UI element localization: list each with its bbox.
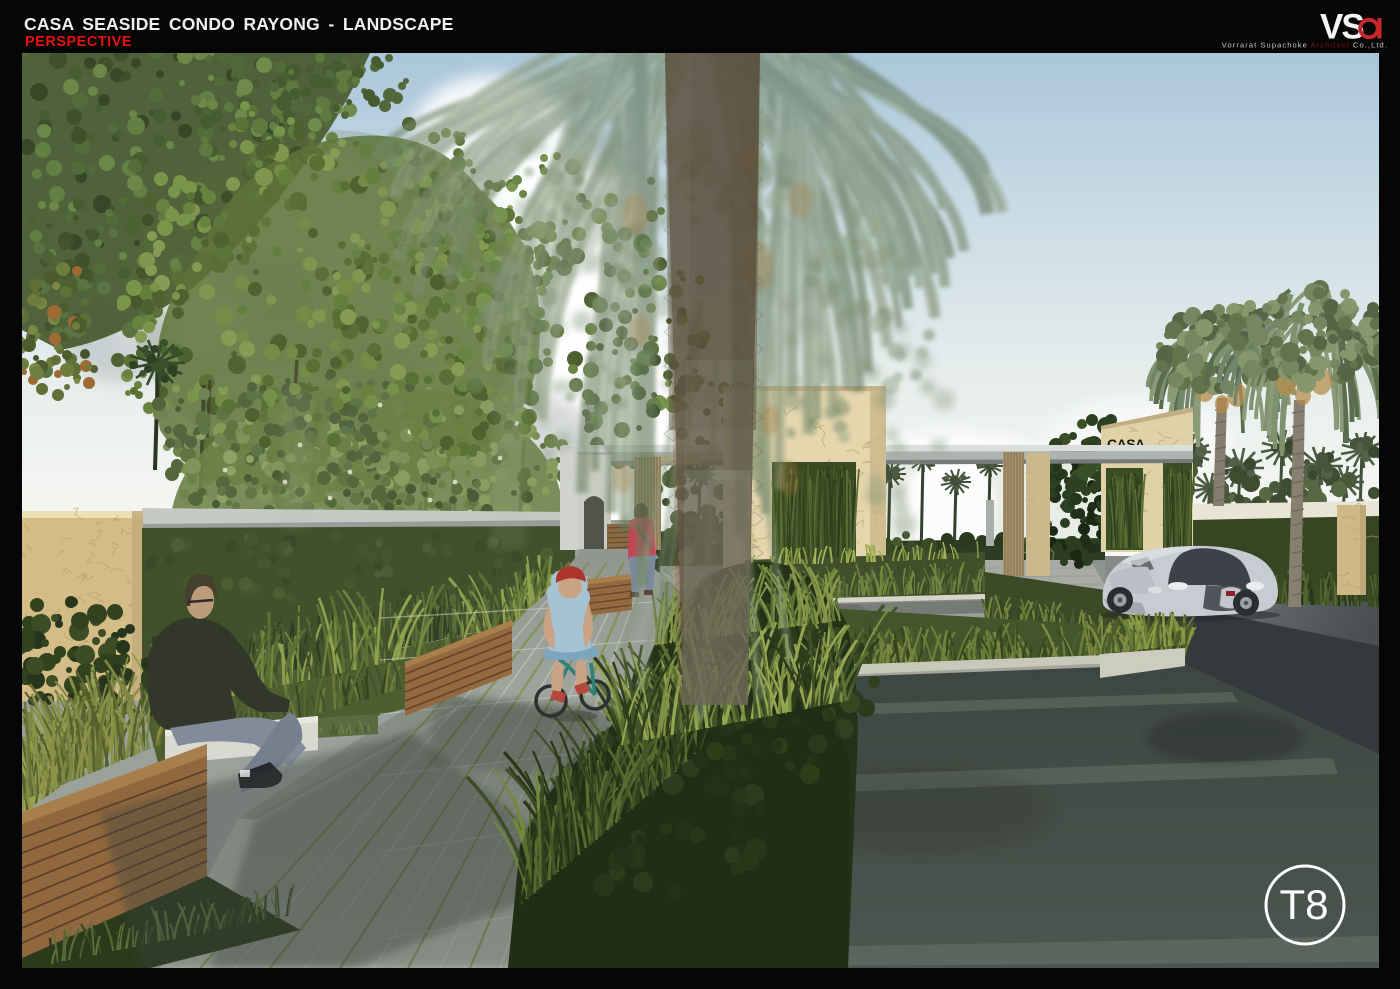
svg-text:T8: T8	[1279, 881, 1328, 928]
svg-text:Vorrarat Supachoke Architect C: Vorrarat Supachoke Architect Co.,Ltd.	[1222, 41, 1388, 50]
svg-text:PERSPECTIVE: PERSPECTIVE	[25, 34, 132, 50]
svg-text:CASA SEASIDE CONDO RAYONG - LA: CASA SEASIDE CONDO RAYONG - LANDSCAPE	[24, 14, 454, 34]
